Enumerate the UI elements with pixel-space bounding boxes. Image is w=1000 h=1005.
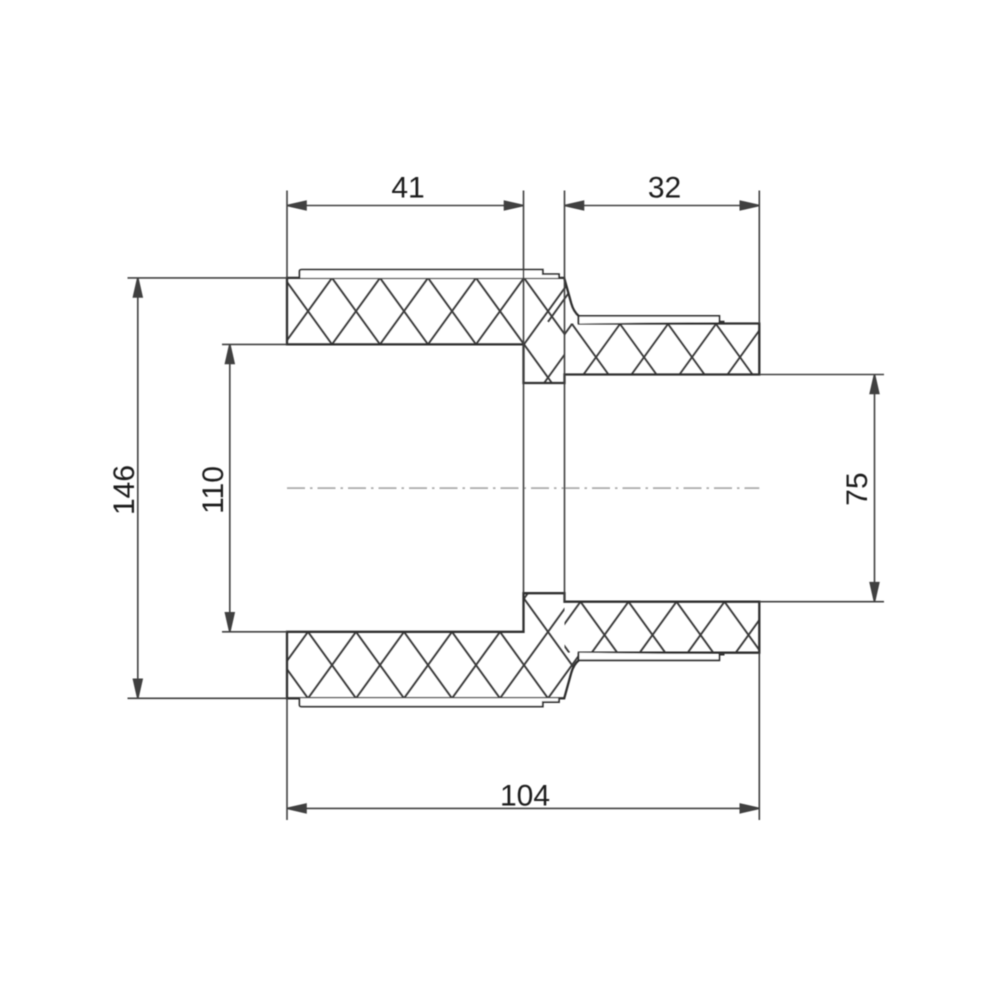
svg-text:104: 104 <box>500 780 550 813</box>
svg-text:110: 110 <box>197 466 230 514</box>
svg-text:32: 32 <box>648 172 681 205</box>
svg-text:146: 146 <box>108 465 141 515</box>
svg-text:75: 75 <box>841 472 874 505</box>
svg-text:41: 41 <box>391 172 424 205</box>
